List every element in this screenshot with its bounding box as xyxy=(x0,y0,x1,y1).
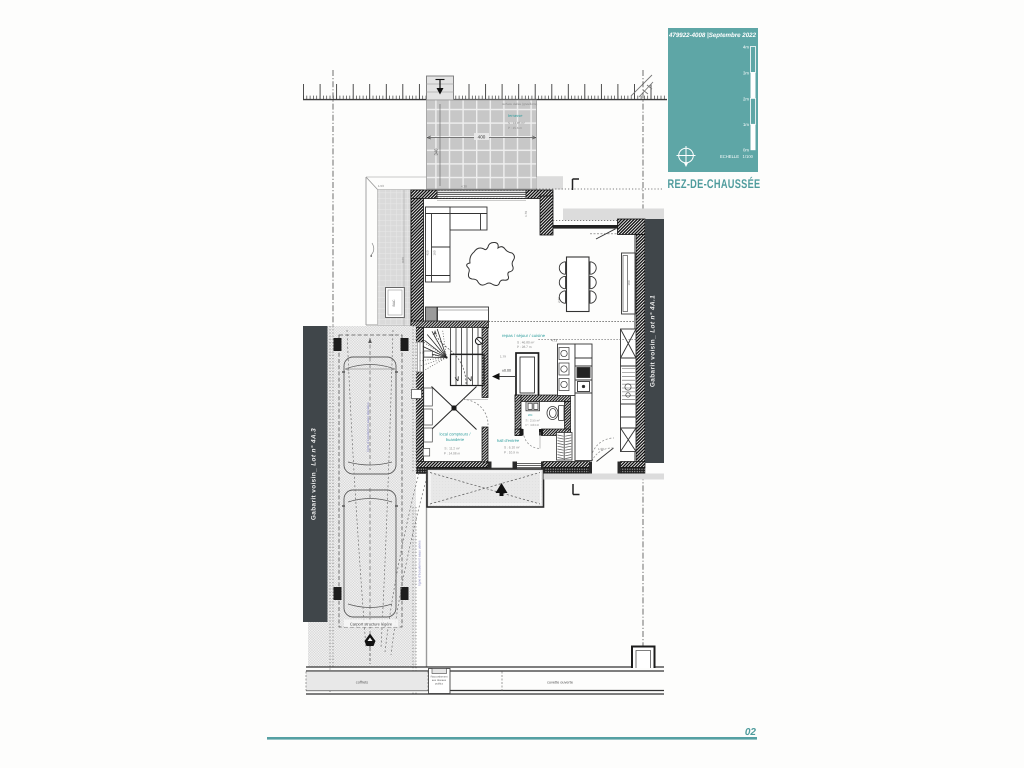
svg-text:Gabarit voisin_ Lot n° 4A.3: Gabarit voisin_ Lot n° 4A.3 xyxy=(311,428,318,520)
svg-text:ligne d'écoulement eaux pluvia: ligne d'écoulement eaux pluviales xyxy=(366,402,370,452)
svg-text:BAC: BAC xyxy=(392,299,396,307)
svg-text:S : 6.10 m²: S : 6.10 m² xyxy=(504,446,520,450)
svg-text:180: 180 xyxy=(433,250,437,255)
svg-text:coffrets: coffrets xyxy=(356,681,368,685)
svg-text:2m: 2m xyxy=(743,97,749,102)
svg-text:P : 15.6 m: P : 15.6 m xyxy=(508,126,522,130)
svg-text:Gabarit voisin_ Lot n° 4A.1: Gabarit voisin_ Lot n° 4A.1 xyxy=(650,295,657,387)
svg-text:ligne d'écoulement eaux usées: ligne d'écoulement eaux usées xyxy=(418,540,422,586)
svg-text:479922-4008 |Septembre 2022: 479922-4008 |Septembre 2022 xyxy=(668,32,756,39)
svg-text:terrasse: terrasse xyxy=(508,113,523,118)
svg-text:4.30: 4.30 xyxy=(461,185,467,189)
svg-text:S : 2.55 m²: S : 2.55 m² xyxy=(526,419,541,423)
svg-text:420: 420 xyxy=(426,250,430,255)
svg-text:REZ-DE-CHAUSSÉE: REZ-DE-CHAUSSÉE xyxy=(668,176,761,191)
svg-text:buanderie: buanderie xyxy=(446,437,465,442)
svg-text:1.79: 1.79 xyxy=(524,211,528,217)
svg-text:surface dallée (gravillons): surface dallée (gravillons) xyxy=(502,102,537,106)
svg-text:340: 340 xyxy=(434,148,439,156)
svg-text:repas / séjour / cuisine: repas / séjour / cuisine xyxy=(502,333,546,338)
svg-text:ECHELLE 1/100: ECHELLE 1/100 xyxy=(720,154,754,159)
svg-text:1m: 1m xyxy=(743,122,749,127)
svg-text:wc: wc xyxy=(528,413,533,417)
svg-text:1.90: 1.90 xyxy=(598,447,604,451)
svg-text:hall d'entrée: hall d'entrée xyxy=(497,438,520,443)
svg-text:local compteurs /: local compteurs / xyxy=(440,432,472,437)
svg-text:Carport structure légère: Carport structure légère xyxy=(350,622,393,627)
svg-text:0m: 0m xyxy=(743,148,749,153)
svg-text:400: 400 xyxy=(478,135,486,140)
svg-text:180: 180 xyxy=(627,280,631,285)
svg-text:±0.00: ±0.00 xyxy=(502,369,511,373)
svg-text:9.06: 9.06 xyxy=(401,257,405,263)
svg-text:4m: 4m xyxy=(743,45,749,50)
svg-text:1.53: 1.53 xyxy=(378,184,384,188)
svg-text:1.79: 1.79 xyxy=(500,355,506,359)
svg-text:S : 11.2 m²: S : 11.2 m² xyxy=(444,447,459,451)
svg-text:S : 14.85 m²: S : 14.85 m² xyxy=(508,121,525,125)
svg-text:4.73: 4.73 xyxy=(551,339,557,343)
svg-text:P : 4.04 m: P : 4.04 m xyxy=(526,423,540,427)
svg-text:P : 28.7 m: P : 28.7 m xyxy=(517,345,532,349)
svg-text:P : 10.9 m: P : 10.9 m xyxy=(504,451,519,455)
svg-text:02: 02 xyxy=(745,727,757,738)
svg-text:P : 14.08 m: P : 14.08 m xyxy=(444,452,461,456)
svg-text:cuvette ouverte: cuvette ouverte xyxy=(547,681,573,685)
svg-text:publics: publics xyxy=(435,683,444,686)
svg-text:S : 46.80 m²: S : 46.80 m² xyxy=(517,341,534,345)
svg-text:3m: 3m xyxy=(743,71,749,76)
